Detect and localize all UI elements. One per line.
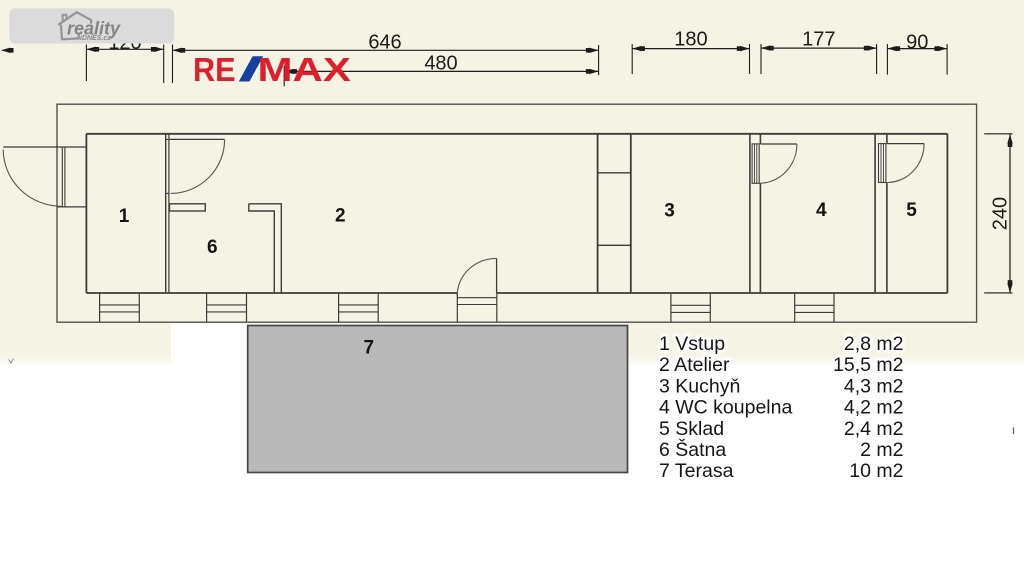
svg-text:5: 5 bbox=[906, 200, 917, 221]
svg-text:2 m2: 2 m2 bbox=[860, 439, 903, 461]
svg-text:MAX: MAX bbox=[258, 51, 352, 88]
svg-text:7 Terasa: 7 Terasa bbox=[659, 460, 734, 482]
svg-text:1 Vstup: 1 Vstup bbox=[659, 333, 725, 355]
svg-text:240: 240 bbox=[989, 197, 1011, 230]
svg-text:4: 4 bbox=[816, 200, 827, 221]
svg-text:2 Atelier: 2 Atelier bbox=[659, 354, 730, 376]
svg-text:15,5 m2: 15,5 m2 bbox=[833, 354, 903, 376]
svg-text:3: 3 bbox=[664, 201, 675, 222]
svg-text:177: 177 bbox=[802, 29, 835, 51]
svg-text:2,4 m2: 2,4 m2 bbox=[844, 418, 904, 440]
svg-text:4 WC koupelna: 4 WC koupelna bbox=[659, 397, 792, 419]
svg-text:180: 180 bbox=[674, 29, 707, 51]
svg-text:3 Kuchyň: 3 Kuchyň bbox=[659, 375, 740, 397]
svg-text:480: 480 bbox=[424, 53, 457, 75]
svg-text:10 m2: 10 m2 bbox=[849, 460, 903, 482]
svg-text:646: 646 bbox=[368, 31, 401, 53]
svg-text:6 Šatna: 6 Šatna bbox=[659, 438, 726, 461]
svg-text:5 Sklad: 5 Sklad bbox=[659, 418, 724, 440]
svg-text:6: 6 bbox=[207, 237, 218, 258]
svg-text:7: 7 bbox=[364, 338, 375, 359]
svg-text:iDNES.cz: iDNES.cz bbox=[80, 35, 111, 42]
svg-text:2,8 m2: 2,8 m2 bbox=[844, 333, 904, 355]
svg-text:1: 1 bbox=[119, 206, 130, 227]
svg-text:2: 2 bbox=[335, 206, 346, 227]
svg-text:90: 90 bbox=[906, 31, 928, 53]
svg-text:4,2 m2: 4,2 m2 bbox=[844, 397, 904, 419]
svg-text:4,3 m2: 4,3 m2 bbox=[844, 375, 904, 397]
svg-text:RE: RE bbox=[193, 51, 236, 88]
